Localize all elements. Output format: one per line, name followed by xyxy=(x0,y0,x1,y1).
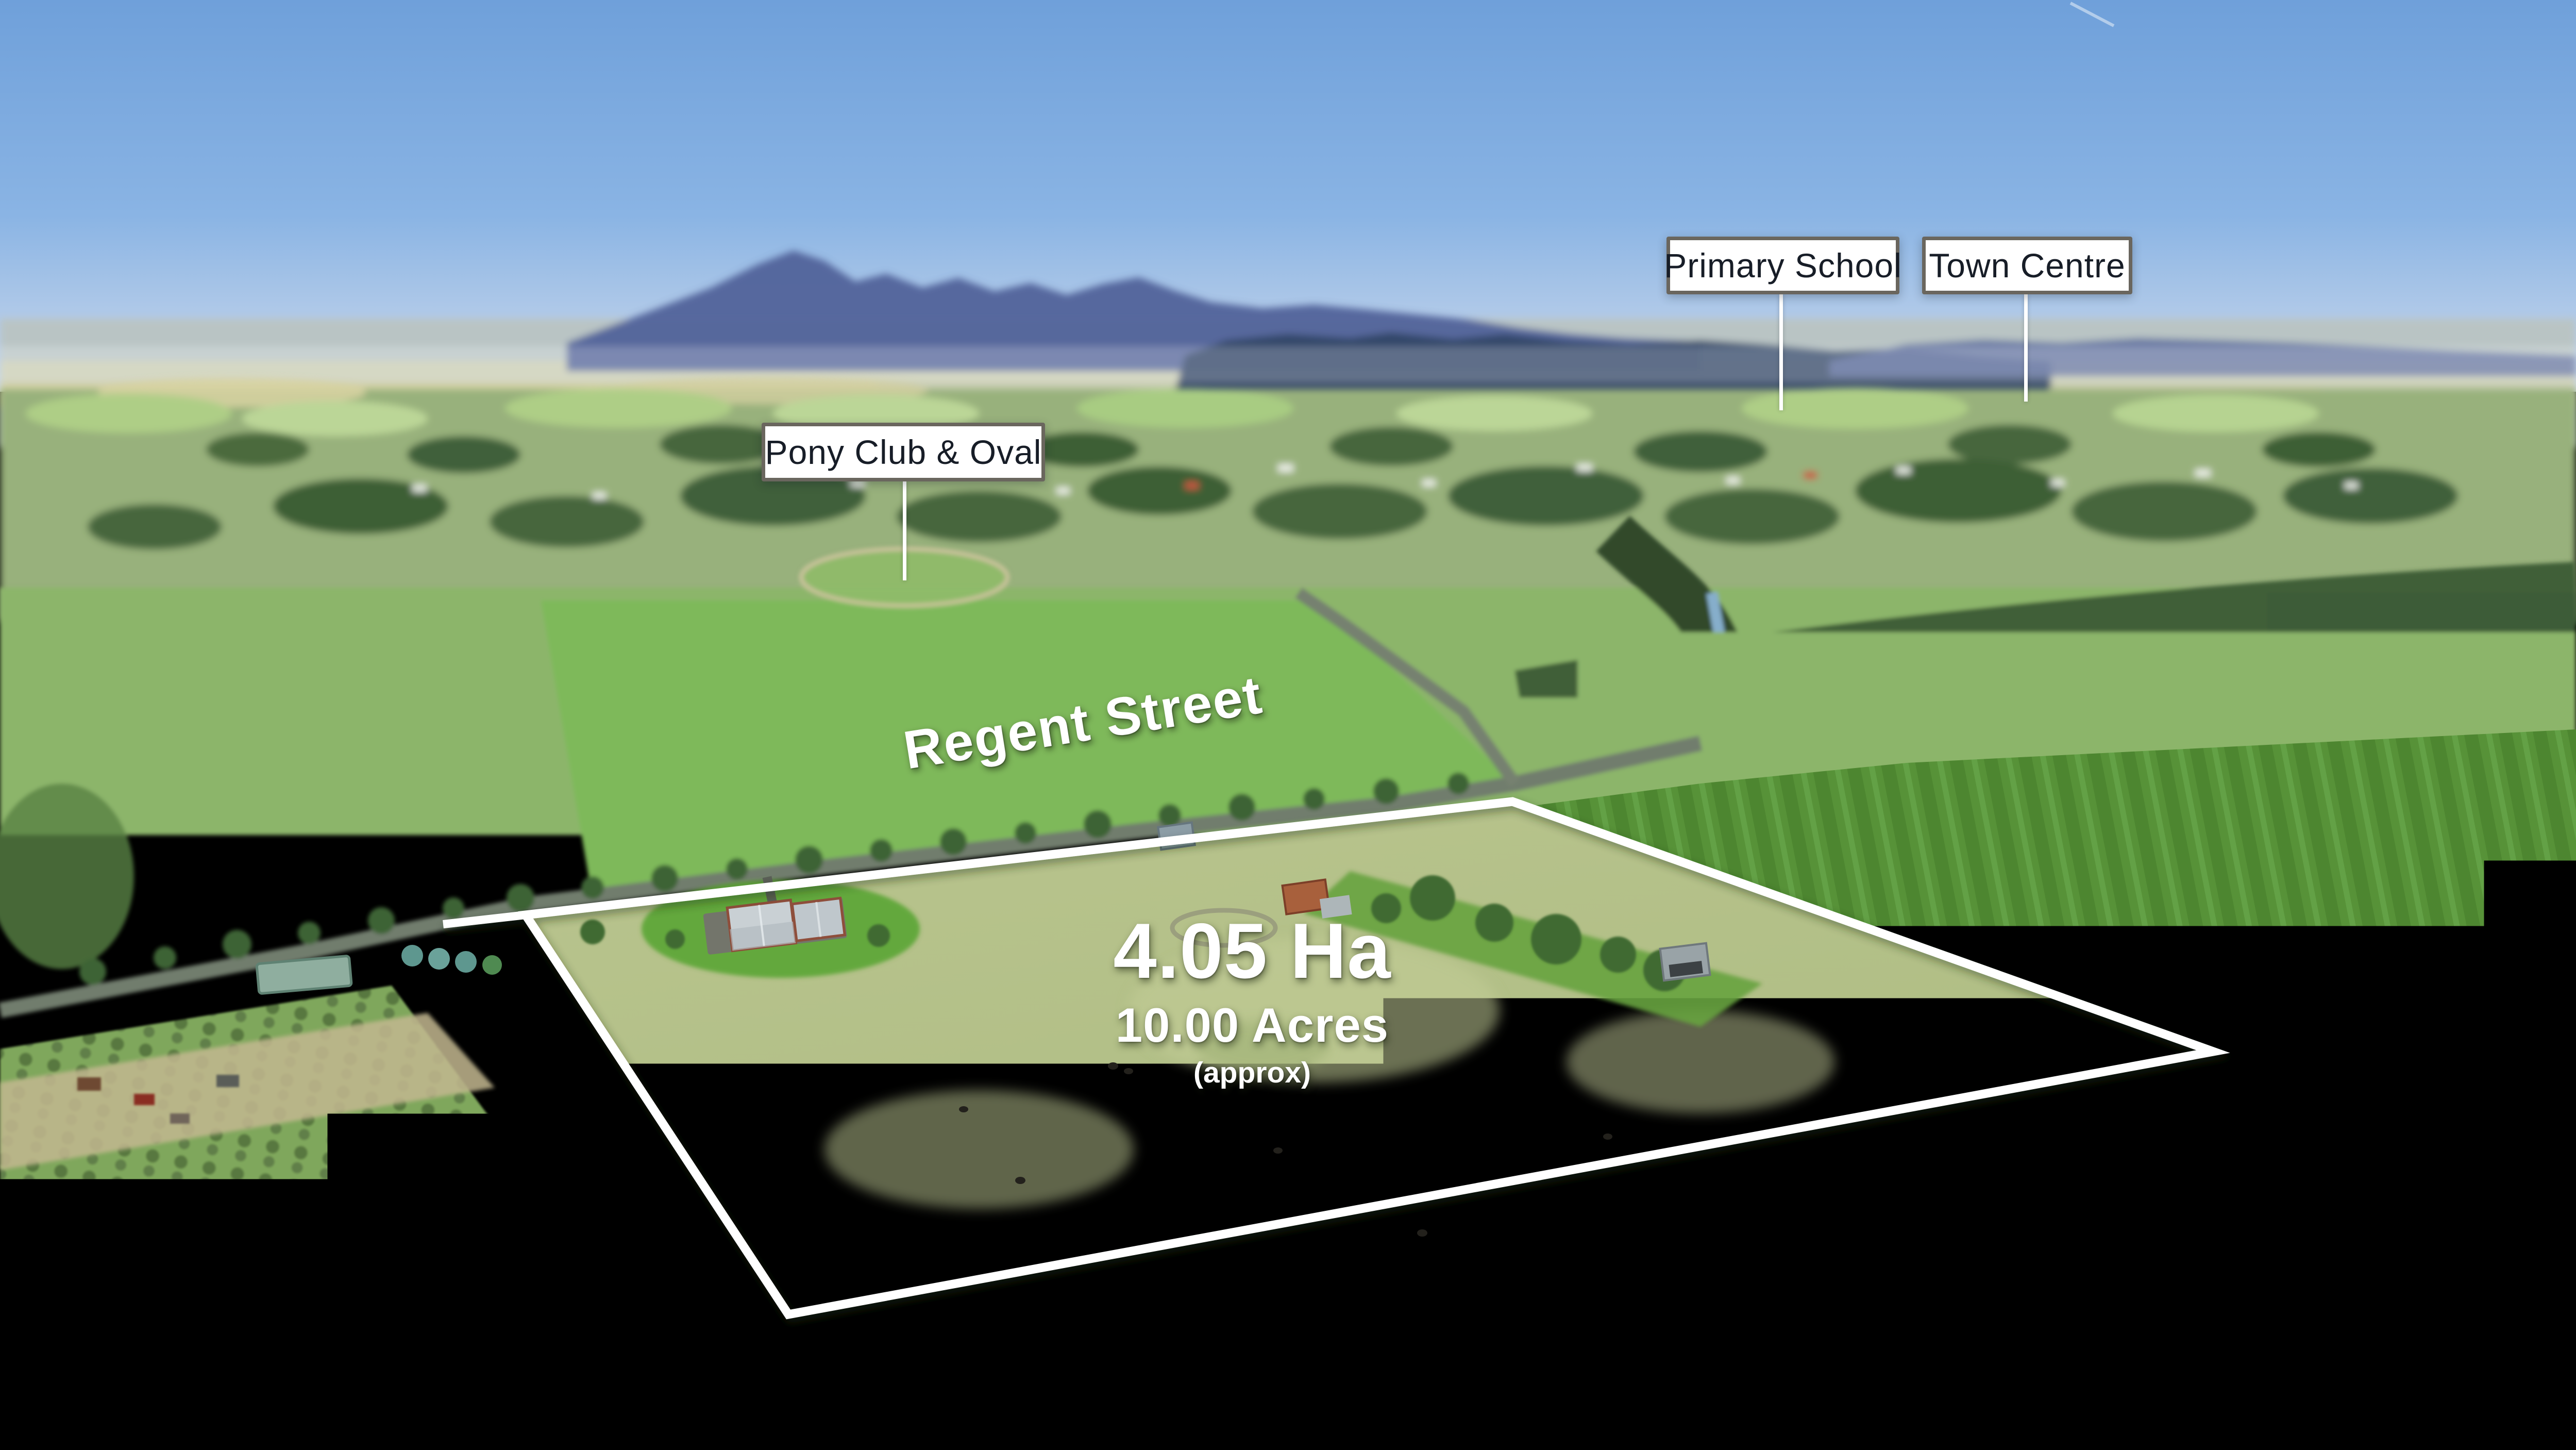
area-acres: 10.00 Acres xyxy=(1116,996,1389,1055)
town-centre-leader-line xyxy=(2024,294,2028,402)
primary-school-leader-line xyxy=(1779,294,1783,410)
area-hectares: 4.05 Ha xyxy=(1113,906,1391,996)
midground-town-band xyxy=(0,377,2576,621)
small-shed-west xyxy=(578,1068,626,1111)
pony-club-leader-line xyxy=(903,481,906,580)
primary-school-label-text: Primary School xyxy=(1664,246,1901,285)
green-shed xyxy=(257,956,351,993)
water-tanks xyxy=(401,945,502,975)
area-annotation: 4.05 Ha 10.00 Acres (approx) xyxy=(1077,906,1427,1091)
label-pony-club: Pony Club & Oval xyxy=(762,423,1045,481)
aerial-photo-stage: Pony Club & Oval Primary School Town Cen… xyxy=(0,0,2576,1450)
town-centre-label-text: Town Centre xyxy=(1929,246,2126,285)
label-town-centre: Town Centre xyxy=(1922,237,2132,294)
aerial-photo-scene xyxy=(0,0,2576,1450)
label-primary-school: Primary School xyxy=(1666,237,1899,294)
grey-shed-east xyxy=(1660,943,1710,981)
pony-club-label-text: Pony Club & Oval xyxy=(765,432,1042,472)
area-qualifier: (approx) xyxy=(1193,1055,1311,1091)
neighbour-house-north xyxy=(546,814,618,856)
